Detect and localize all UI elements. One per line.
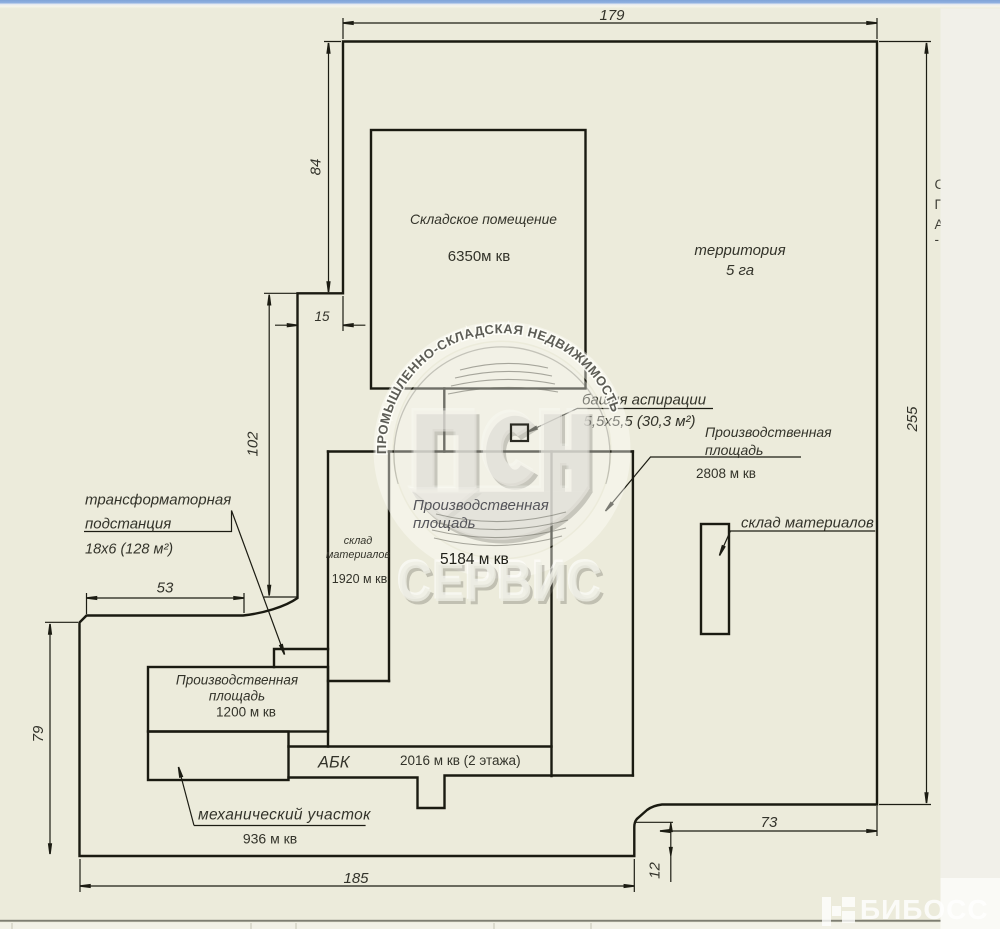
svg-text:2016 м кв (2 этажа): 2016 м кв (2 этажа) xyxy=(400,753,521,768)
svg-text:БИБОСС: БИБОСС xyxy=(860,894,989,925)
svg-text:5 га: 5 га xyxy=(726,262,754,279)
svg-text:подстанция: подстанция xyxy=(85,516,171,533)
svg-text:185: 185 xyxy=(343,870,369,887)
svg-text:Производственная: Производственная xyxy=(176,673,298,688)
svg-text:трансформаторная: трансформаторная xyxy=(85,492,231,509)
svg-text:53: 53 xyxy=(157,580,174,597)
svg-text:территория: территория xyxy=(694,242,785,259)
svg-text:73: 73 xyxy=(761,814,778,831)
svg-text:255: 255 xyxy=(904,406,921,433)
svg-text:материалов: материалов xyxy=(326,549,390,561)
svg-text:79: 79 xyxy=(30,725,47,742)
svg-text:12: 12 xyxy=(647,862,664,879)
svg-text:склад материалов: склад материалов xyxy=(741,515,874,532)
svg-text:площадь: площадь xyxy=(209,689,265,704)
svg-text:Производственная: Производственная xyxy=(705,424,832,440)
svg-text:5184 м кв: 5184 м кв xyxy=(440,551,509,568)
svg-text:площадь: площадь xyxy=(413,515,476,532)
svg-text:АБК: АБК xyxy=(317,754,351,772)
svg-text:15: 15 xyxy=(314,309,330,324)
svg-text:механический участок: механический участок xyxy=(198,807,371,824)
svg-text:179: 179 xyxy=(599,7,625,24)
svg-text:-: - xyxy=(935,232,940,247)
svg-text:2808 м кв: 2808 м кв xyxy=(696,466,756,481)
svg-text:1920 м кв: 1920 м кв xyxy=(332,572,388,586)
svg-text:6350м кв: 6350м кв xyxy=(448,248,510,265)
svg-text:102: 102 xyxy=(245,431,262,457)
svg-text:84: 84 xyxy=(308,159,325,176)
svg-text:18х6 (128 м²): 18х6 (128 м²) xyxy=(85,542,173,558)
svg-text:площадь: площадь xyxy=(705,442,763,458)
svg-text:Производственная: Производственная xyxy=(413,497,549,514)
svg-text:936 м кв: 936 м кв xyxy=(243,831,297,847)
svg-text:Складское помещение: Складское помещение xyxy=(410,212,557,227)
svg-text:1200 м кв: 1200 м кв xyxy=(216,705,276,720)
svg-text:склад: склад xyxy=(344,535,373,547)
